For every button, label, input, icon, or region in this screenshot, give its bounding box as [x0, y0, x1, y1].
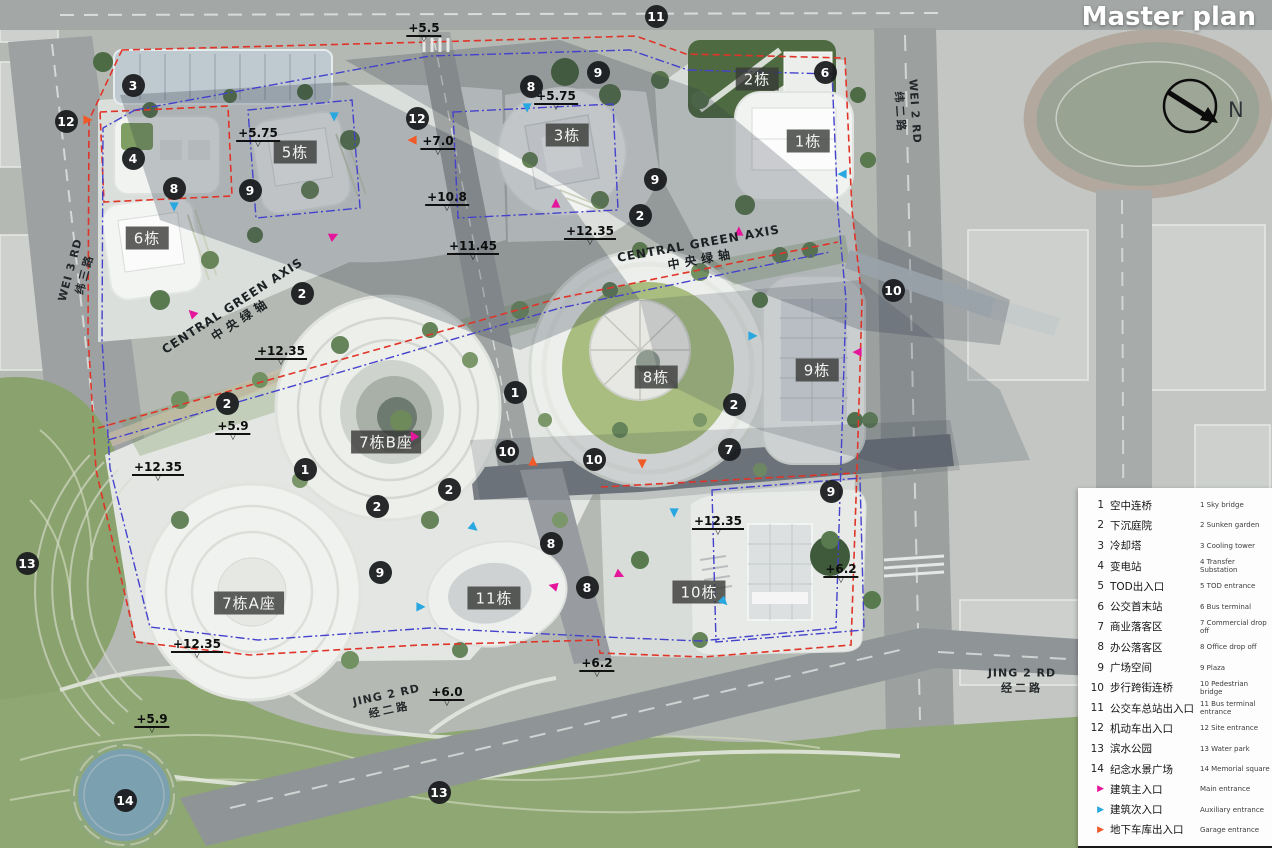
aux-entrance-legend-icon: ▶	[1088, 805, 1104, 815]
map-marker: 3	[122, 74, 145, 97]
legend-item-label-en: 6 Bus terminal	[1200, 603, 1251, 611]
north-arrow-icon	[1158, 76, 1236, 136]
legend-item-label-zh: 纪念水景广场	[1110, 762, 1173, 777]
legend-item-number: 8	[1088, 641, 1104, 653]
legend-item: 4变电站4 Transfer Substation	[1088, 556, 1272, 576]
map-marker: 10	[583, 448, 606, 471]
map-marker: 9	[587, 61, 610, 84]
main-entrance-arrow-icon: ▶	[325, 227, 344, 246]
building-label: 5栋	[274, 141, 317, 164]
elevation-marker: +12.35▽	[132, 461, 184, 483]
map-marker: 13	[428, 781, 451, 804]
legend-item: 10步行跨街连桥10 Pedestrian bridge	[1088, 678, 1272, 698]
legend-item-number: 6	[1088, 601, 1104, 613]
garage-entrance-arrow-icon: ▶	[405, 133, 419, 147]
elevation-marker: +5.5▽	[406, 22, 441, 44]
aux-entrance-arrow-icon: ▶	[520, 101, 534, 115]
map-marker: 1	[504, 381, 527, 404]
legend-item-label-en: 4 Transfer Substation	[1200, 558, 1272, 574]
road-label: JING 2 RD经二路	[988, 667, 1056, 696]
master-plan-page: 2栋1栋3栋5栋6栋8栋9栋7栋B座7栋A座11栋10栋113896121248…	[0, 0, 1272, 848]
map-marker: 9	[644, 168, 667, 191]
map-marker: 2	[723, 393, 746, 416]
page-title: Master plan	[1082, 2, 1256, 32]
legend-item-label-zh: 商业落客区	[1110, 619, 1163, 634]
map-marker: 8	[540, 532, 563, 555]
elevation-marker: +6.2▽	[579, 657, 614, 679]
legend-item-label-en: 9 Plaza	[1200, 664, 1225, 672]
legend-item-label-zh: 步行跨街连桥	[1110, 680, 1173, 695]
elevation-marker: +12.35▽	[564, 225, 616, 247]
map-marker: 12	[55, 110, 78, 133]
elevation-marker: +6.0▽	[429, 686, 464, 708]
legend-item-number: 14	[1088, 763, 1104, 775]
map-marker: 11	[645, 5, 668, 28]
garage-entrance-arrow-icon: ▶	[635, 457, 649, 471]
legend-item-label-en: 14 Memorial square	[1200, 765, 1270, 773]
legend-item-label-zh: 滨水公园	[1110, 741, 1152, 756]
main-entrance-arrow-icon: ▶	[549, 196, 563, 210]
main-entrance-legend-icon: ▶	[1088, 784, 1104, 794]
legend-item: 11公交车总站出入口11 Bus terminal entrance	[1088, 698, 1272, 718]
main-entrance-arrow-icon: ▶	[850, 345, 864, 359]
map-marker: 10	[496, 440, 519, 463]
garage-entrance-arrow-icon: ▶	[526, 454, 540, 468]
legend-item-label-zh: 建筑次入口	[1110, 802, 1163, 817]
legend-item-label-en: 5 TOD entrance	[1200, 582, 1255, 590]
map-marker: 9	[369, 561, 392, 584]
map-marker: 1	[294, 458, 317, 481]
legend-item-number: 1	[1088, 499, 1104, 511]
map-marker: 2	[366, 495, 389, 518]
legend-item-number: 11	[1088, 702, 1104, 714]
map-marker: 8	[163, 177, 186, 200]
legend-item: 13滨水公园13 Water park	[1088, 739, 1272, 759]
legend-item: 8办公落客区8 Office drop off	[1088, 637, 1272, 657]
legend-item-label-zh: 变电站	[1110, 559, 1142, 574]
legend-panel: 1空中连桥1 Sky bridge2下沉庭院2 Sunken garden3冷却…	[1078, 488, 1272, 848]
legend-item-number: 10	[1088, 682, 1104, 694]
road-label: WEI 2 RD纬二路	[890, 79, 923, 146]
building-label: 7栋A座	[214, 592, 284, 615]
legend-item-label-en: 3 Cooling tower	[1200, 542, 1255, 550]
legend-item-label-en: Garage entrance	[1200, 826, 1259, 834]
aux-entrance-arrow-icon: ▶	[667, 506, 681, 520]
legend-item: 5TOD出入口5 TOD entrance	[1088, 576, 1272, 596]
map-marker: 10	[882, 279, 905, 302]
main-entrance-arrow-icon: ▶	[611, 566, 630, 585]
north-arrow: N	[1158, 76, 1236, 136]
map-marker: 6	[814, 61, 837, 84]
legend-item-label-zh: 办公落客区	[1110, 640, 1163, 655]
legend-item-label-en: Main entrance	[1200, 785, 1250, 793]
elevation-marker: +12.35▽	[692, 515, 744, 537]
road-label-zh: 经二路	[988, 680, 1056, 696]
elevation-marker: +12.35▽	[171, 638, 223, 660]
legend-item-number: 3	[1088, 540, 1104, 552]
garage-entrance-legend-icon: ▶	[1088, 825, 1104, 835]
legend-item-number: 7	[1088, 621, 1104, 633]
aux-entrance-arrow-icon: ▶	[835, 167, 849, 181]
green-axis-label-en: CENTRAL GREEN AXIS	[159, 255, 305, 357]
legend-item-number: 4	[1088, 560, 1104, 572]
legend-item: 2下沉庭院2 Sunken garden	[1088, 515, 1272, 535]
legend-item: 3冷却塔3 Cooling tower	[1088, 536, 1272, 556]
elevation-marker: +6.2▽	[823, 563, 858, 585]
legend-item-number: 9	[1088, 662, 1104, 674]
elevation-marker: +11.45▽	[447, 240, 499, 262]
aux-entrance-arrow-icon: ▶	[327, 110, 341, 124]
legend-entrance-item: ▶建筑主入口Main entrance	[1088, 779, 1272, 799]
legend-item-label-en: 10 Pedestrian bridge	[1200, 680, 1272, 696]
map-marker: 7	[718, 438, 741, 461]
building-label: 11栋	[467, 587, 520, 610]
legend-item-label-zh: 下沉庭院	[1110, 518, 1152, 533]
legend-item-label-en: 13 Water park	[1200, 745, 1250, 753]
building-label: 6栋	[126, 227, 169, 250]
legend-item-number: 13	[1088, 743, 1104, 755]
road-label-en: JING 2 RD	[988, 667, 1056, 680]
elevation-marker: +7.0▽	[420, 135, 455, 157]
elevation-marker: +5.75▽	[534, 90, 578, 112]
legend-item-label-en: 12 Site entrance	[1200, 724, 1258, 732]
legend-item: 7商业落客区7 Commercial drop off	[1088, 617, 1272, 637]
legend-item-label-zh: 冷却塔	[1110, 538, 1142, 553]
map-marker: 2	[629, 204, 652, 227]
legend-item-label-zh: 建筑主入口	[1110, 782, 1163, 797]
legend-item: 9广场空间9 Plaza	[1088, 657, 1272, 677]
map-marker: 9	[820, 480, 843, 503]
legend-item-label-zh: 公交车总站出入口	[1110, 701, 1194, 716]
legend-item-label-zh: 地下车库出入口	[1110, 822, 1184, 837]
legend-item-label-zh: 公交首末站	[1110, 599, 1163, 614]
elevation-marker: +5.9▽	[215, 420, 250, 442]
map-marker: 2	[438, 478, 461, 501]
legend-item-label-en: 8 Office drop off	[1200, 643, 1257, 651]
legend-item-label-zh: 空中连桥	[1110, 498, 1152, 513]
aux-entrance-arrow-icon: ▶	[167, 200, 181, 214]
legend-item-number: 2	[1088, 519, 1104, 531]
map-marker: 12	[406, 107, 429, 130]
legend-item: 12机动车出入口12 Site entrance	[1088, 718, 1272, 738]
building-label: 9栋	[796, 359, 839, 382]
elevation-marker: +5.75▽	[236, 127, 280, 149]
legend-item-label-zh: 机动车出入口	[1110, 721, 1173, 736]
aux-entrance-arrow-icon: ▶	[746, 329, 760, 343]
elevation-marker: +5.9▽	[134, 713, 169, 735]
legend-item-label-en: 11 Bus terminal entrance	[1200, 700, 1272, 716]
elevation-marker: +12.35▽	[255, 345, 307, 367]
map-marker: 14	[114, 789, 137, 812]
main-entrance-arrow-icon: ▶	[544, 577, 561, 594]
legend-item-label-en: 7 Commercial drop off	[1200, 619, 1272, 635]
north-label: N	[1228, 98, 1244, 122]
map-marker: 13	[16, 552, 39, 575]
legend-item-label-zh: TOD出入口	[1110, 579, 1164, 594]
aux-entrance-arrow-icon: ▶	[414, 600, 428, 614]
map-marker: 2	[216, 392, 239, 415]
garage-entrance-arrow-icon: ▶	[81, 113, 95, 127]
legend-item-number: 5	[1088, 580, 1104, 592]
road-label: JING 2 RD经二路	[352, 682, 425, 725]
building-label: 2栋	[736, 68, 779, 91]
map-marker: 8	[576, 576, 599, 599]
legend-item-label-en: Auxiliary entrance	[1200, 806, 1264, 814]
map-marker: 4	[122, 147, 145, 170]
legend-entrance-item: ▶建筑次入口Auxiliary entrance	[1088, 799, 1272, 819]
legend-item: 1空中连桥1 Sky bridge	[1088, 495, 1272, 515]
legend-item-label-zh: 广场空间	[1110, 660, 1152, 675]
legend-item-label-en: 1 Sky bridge	[1200, 501, 1244, 509]
building-label: 8栋	[635, 366, 678, 389]
green-axis-label: CENTRAL GREEN AXIS中央绿轴	[616, 222, 784, 281]
building-label: 1栋	[787, 130, 830, 153]
building-label: 3栋	[546, 124, 589, 147]
legend-item-label-en: 2 Sunken garden	[1200, 521, 1259, 529]
aux-entrance-arrow-icon: ▶	[464, 518, 484, 538]
legend-item: 6公交首末站6 Bus terminal	[1088, 596, 1272, 616]
legend-item-number: 12	[1088, 722, 1104, 734]
elevation-marker: +10.8▽	[425, 191, 469, 213]
map-marker: 9	[239, 179, 262, 202]
legend-item: 14纪念水景广场14 Memorial square	[1088, 759, 1272, 779]
road-label: WEI 3 RD纬三路	[56, 237, 101, 307]
legend-entrance-item: ▶地下车库出入口Garage entrance	[1088, 820, 1272, 840]
